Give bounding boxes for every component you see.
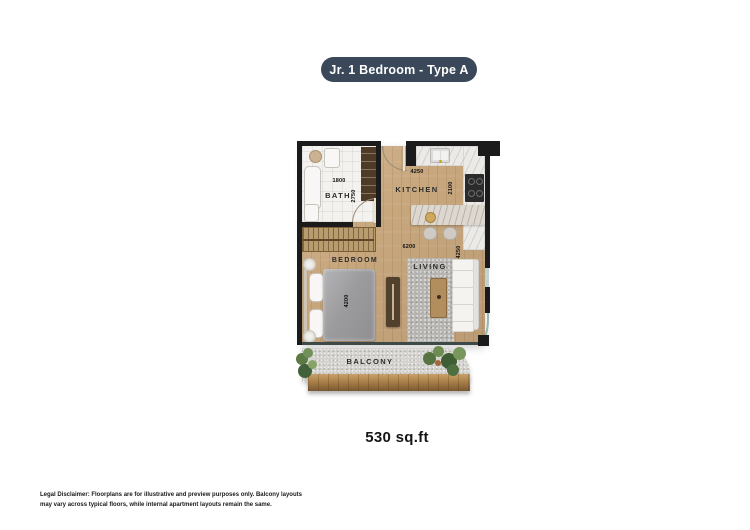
kitchen-sink-icon (430, 148, 450, 163)
floorplan: 1800 BATH 2750 4250 KITCHEN 2100 6200 42… (295, 138, 507, 400)
wall-top-left (297, 141, 381, 146)
stool-icon (423, 227, 437, 240)
sofa-cushion-icon (452, 287, 474, 305)
sliding-glass-door (299, 342, 480, 345)
wardrobe-rail-icon (303, 239, 374, 241)
wall-right-upper (485, 141, 490, 268)
wall-bath-right (376, 141, 381, 227)
overall-depth-dim: 4250 (455, 240, 463, 264)
wall-left (297, 141, 302, 345)
wardrobe (302, 227, 376, 252)
sofa-cushion-icon (452, 270, 474, 288)
faucet-icon (439, 160, 442, 163)
legal-disclaimer: Legal Disclaimer: Floorplans are for ill… (40, 491, 312, 511)
wall-right-mid (485, 287, 490, 313)
nightstand-lamp-icon (303, 258, 316, 271)
tv-console-handle-icon (392, 284, 394, 320)
table-decor-icon (437, 295, 441, 299)
wall-corner-block (478, 141, 500, 156)
stool-icon (443, 227, 457, 240)
island-bowl-icon (425, 212, 436, 223)
overall-width-dim: 6200 (389, 243, 429, 251)
pillow-icon (309, 273, 324, 302)
wall-stub-bottom-right (478, 335, 489, 346)
bath-basin-icon (309, 150, 322, 163)
bed-length-dim: 4200 (343, 289, 351, 313)
cooktop-icon (465, 174, 484, 202)
bath-depth-dim: 2750 (350, 184, 358, 208)
plant-accent-icon (435, 360, 441, 366)
kitchen-depth-dim: 2100 (447, 176, 455, 200)
bedroom-label: BEDROOM (320, 257, 390, 264)
kitchen-label: KITCHEN (387, 185, 447, 194)
plant-icon (308, 360, 317, 369)
plant-icon (447, 364, 459, 376)
plant-icon (303, 348, 313, 358)
glass-balustrade-curve (451, 312, 489, 354)
wall-bath-bottom (297, 222, 353, 227)
area-label: 530 sq.ft (297, 429, 497, 446)
plan-type-banner: Jr. 1 Bedroom - Type A (321, 57, 477, 82)
kitchen-island (411, 205, 485, 225)
bath-closet (361, 147, 376, 201)
coffee-table (430, 278, 447, 318)
window-right (485, 268, 489, 287)
tv-console (386, 277, 400, 327)
toilet-icon (324, 148, 340, 168)
balcony-deck (308, 374, 470, 391)
plan-type-label: Jr. 1 Bedroom - Type A (329, 63, 468, 77)
bath-sink-icon (304, 204, 319, 222)
kitchen-width-dim: 4250 (397, 168, 437, 176)
living-label: LIVING (405, 262, 455, 271)
wall-entry-column (406, 141, 416, 166)
balcony-label: BALCONY (340, 357, 400, 366)
